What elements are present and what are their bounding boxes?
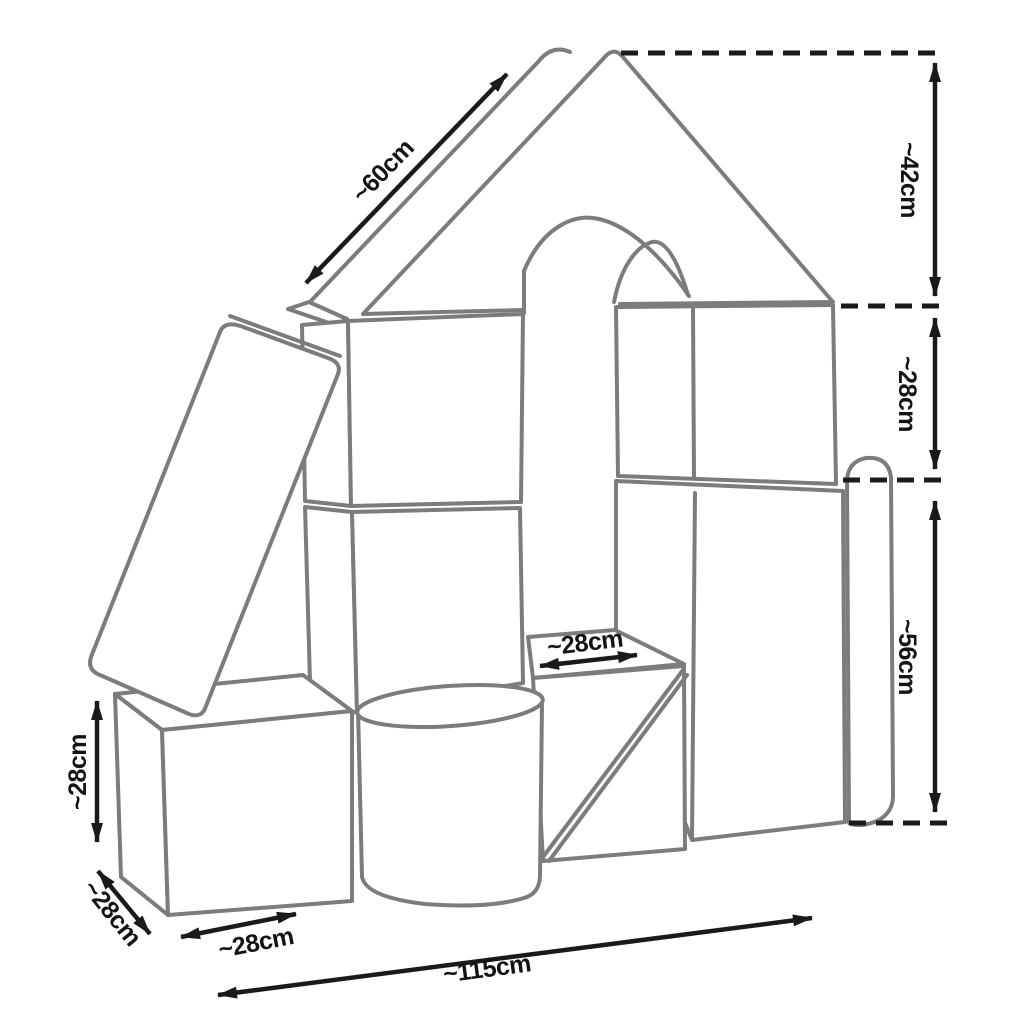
right-upper-wall-front-edge	[693, 309, 694, 478]
blocks-group	[90, 49, 893, 915]
block-dimension-diagram: ~60cm ~42cm ~28cm ~56cm ~28cm ~28cm ~28c…	[0, 0, 1024, 1024]
middle-upper-cube-front	[348, 314, 523, 506]
half-cylinder-block	[847, 458, 893, 825]
left-cube-front-face	[162, 711, 352, 915]
dim-label-upper-wall-height: ~28cm	[893, 356, 921, 432]
diagram-canvas: ~60cm ~42cm ~28cm ~56cm ~28cm ~28cm ~28c…	[0, 0, 1024, 1024]
left-cube-side-face	[115, 694, 168, 915]
cylinder-body	[358, 702, 542, 905]
right-upper-wall-block	[616, 305, 836, 484]
leaning-plank-block	[90, 324, 339, 715]
middle-lower-cube-front	[352, 508, 523, 712]
dim-label-left-cube-height: ~28cm	[64, 734, 92, 810]
dim-label-roof-height: ~42cm	[895, 142, 923, 218]
dim-label-column-height: ~56cm	[893, 619, 921, 695]
dim-label-total-width: ~115cm	[442, 949, 533, 988]
